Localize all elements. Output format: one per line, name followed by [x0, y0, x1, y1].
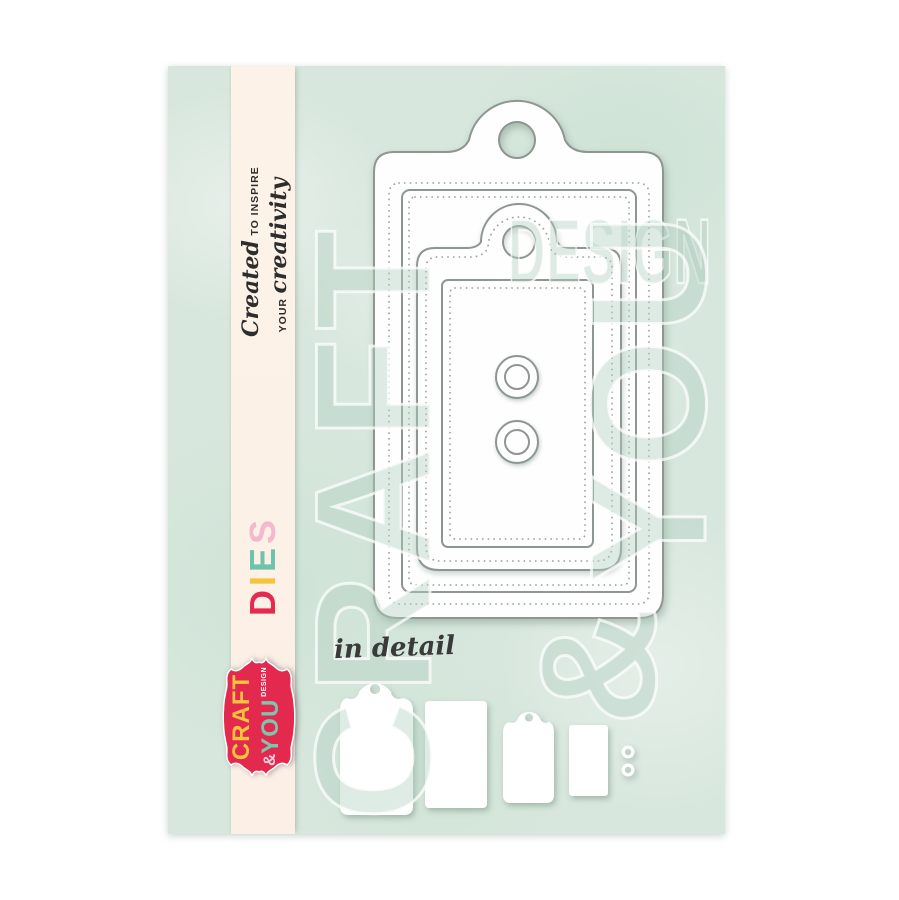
tagline-your: YOUR: [277, 298, 289, 332]
logo-badge: CRAFT &YOU DESIGN: [221, 658, 297, 776]
eyelet-die-top: [496, 356, 538, 398]
dies-letter-e: E: [242, 544, 283, 572]
mint-card: DESIGN CRAFT YOU & Created TO INSPIRE YO…: [168, 66, 725, 834]
dies-letter-s: S: [242, 516, 283, 544]
tagline-line1: Created TO INSPIRE: [239, 173, 267, 337]
detail-large-tag: [340, 683, 413, 815]
detail-small-rectangle: [569, 725, 608, 796]
tagline-created: Created: [238, 240, 264, 337]
tagline-to-inspire: TO INSPIRE: [249, 166, 261, 235]
product-image: DESIGN CRAFT YOU & Created TO INSPIRE YO…: [0, 0, 899, 900]
detail-eyelet-rings: [622, 746, 635, 777]
tagline-creativity: creativity: [266, 178, 292, 294]
logo-craft-text: CRAFT: [228, 658, 256, 776]
detail-dies-row: [331, 672, 651, 828]
logo-you-text: YOU: [257, 699, 284, 754]
dies-letter-i: I: [242, 572, 283, 586]
craft-and-you-logo: CRAFT &YOU DESIGN: [220, 658, 298, 776]
in-detail-label: in detail: [334, 631, 456, 665]
dies-product-label: DIES: [242, 526, 284, 616]
main-die-illustration: [358, 80, 680, 642]
eyelet-die-bottom: [496, 421, 538, 463]
tagline-line2: YOUR creativity: [267, 173, 295, 337]
brand-tagline: Created TO INSPIRE YOUR creativity: [239, 173, 287, 337]
detail-large-rectangle: [425, 701, 487, 808]
logo-and-you-row: &YOU: [257, 699, 285, 766]
logo-design-text: DESIGN: [261, 667, 268, 697]
detail-small-tag: [503, 712, 554, 803]
dies-letter-d: D: [242, 586, 283, 616]
logo-ampersand: &: [260, 754, 279, 766]
